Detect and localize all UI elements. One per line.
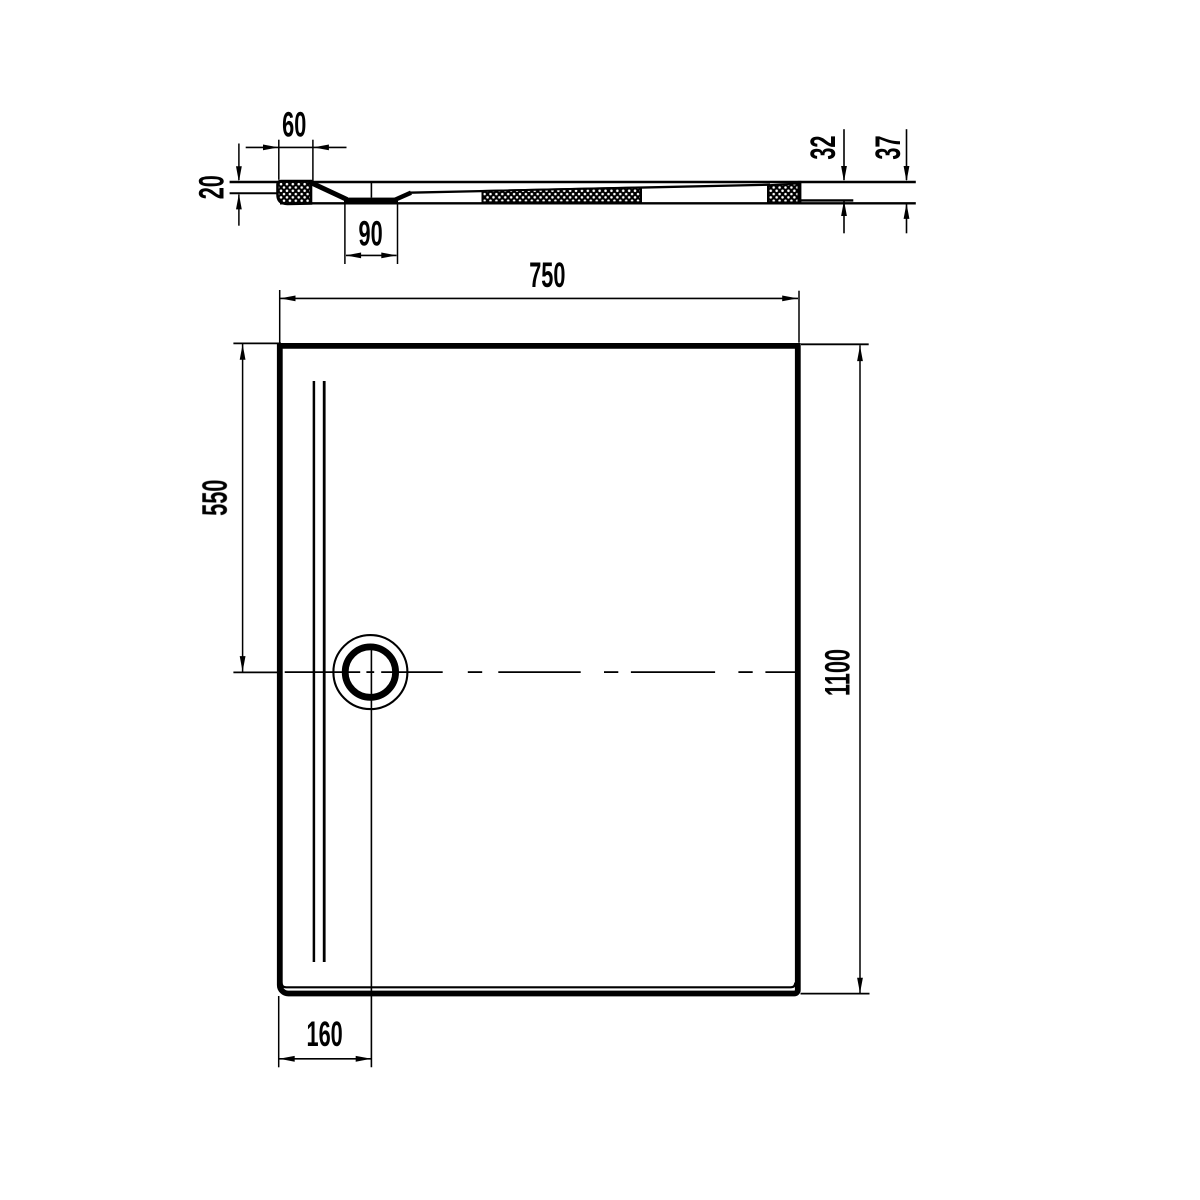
- svg-text:90: 90: [359, 216, 383, 254]
- svg-text:1100: 1100: [820, 649, 858, 696]
- svg-text:160: 160: [306, 1016, 342, 1054]
- svg-text:20: 20: [193, 175, 231, 199]
- svg-text:37: 37: [870, 135, 908, 159]
- svg-text:32: 32: [805, 136, 843, 160]
- svg-text:750: 750: [529, 257, 565, 295]
- svg-text:550: 550: [197, 480, 235, 516]
- svg-text:60: 60: [282, 106, 306, 144]
